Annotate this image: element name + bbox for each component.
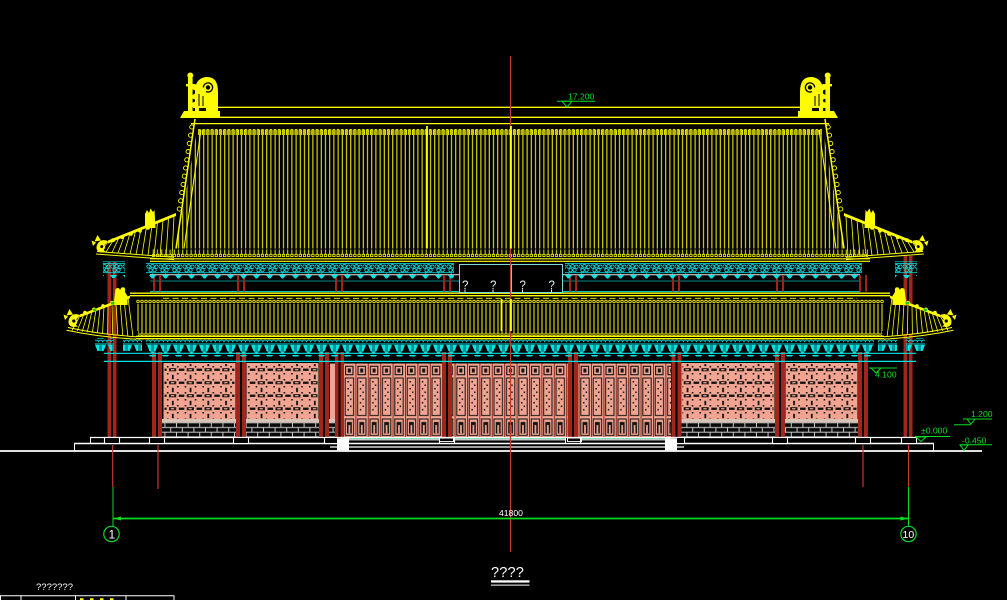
svg-text:4.100: 4.100 — [875, 370, 897, 380]
svg-text:10: 10 — [903, 529, 915, 541]
svg-text:1: 1 — [109, 528, 116, 542]
svg-text:±0.000: ±0.000 — [921, 426, 947, 436]
svg-text:17.200: 17.200 — [568, 92, 595, 102]
svg-text:1.200: 1.200 — [971, 409, 993, 419]
svg-text:41800: 41800 — [499, 508, 523, 518]
svg-text:???????: ??????? — [36, 582, 73, 593]
svg-text:-0.450: -0.450 — [962, 436, 987, 446]
svg-text:????: ???? — [491, 565, 524, 581]
